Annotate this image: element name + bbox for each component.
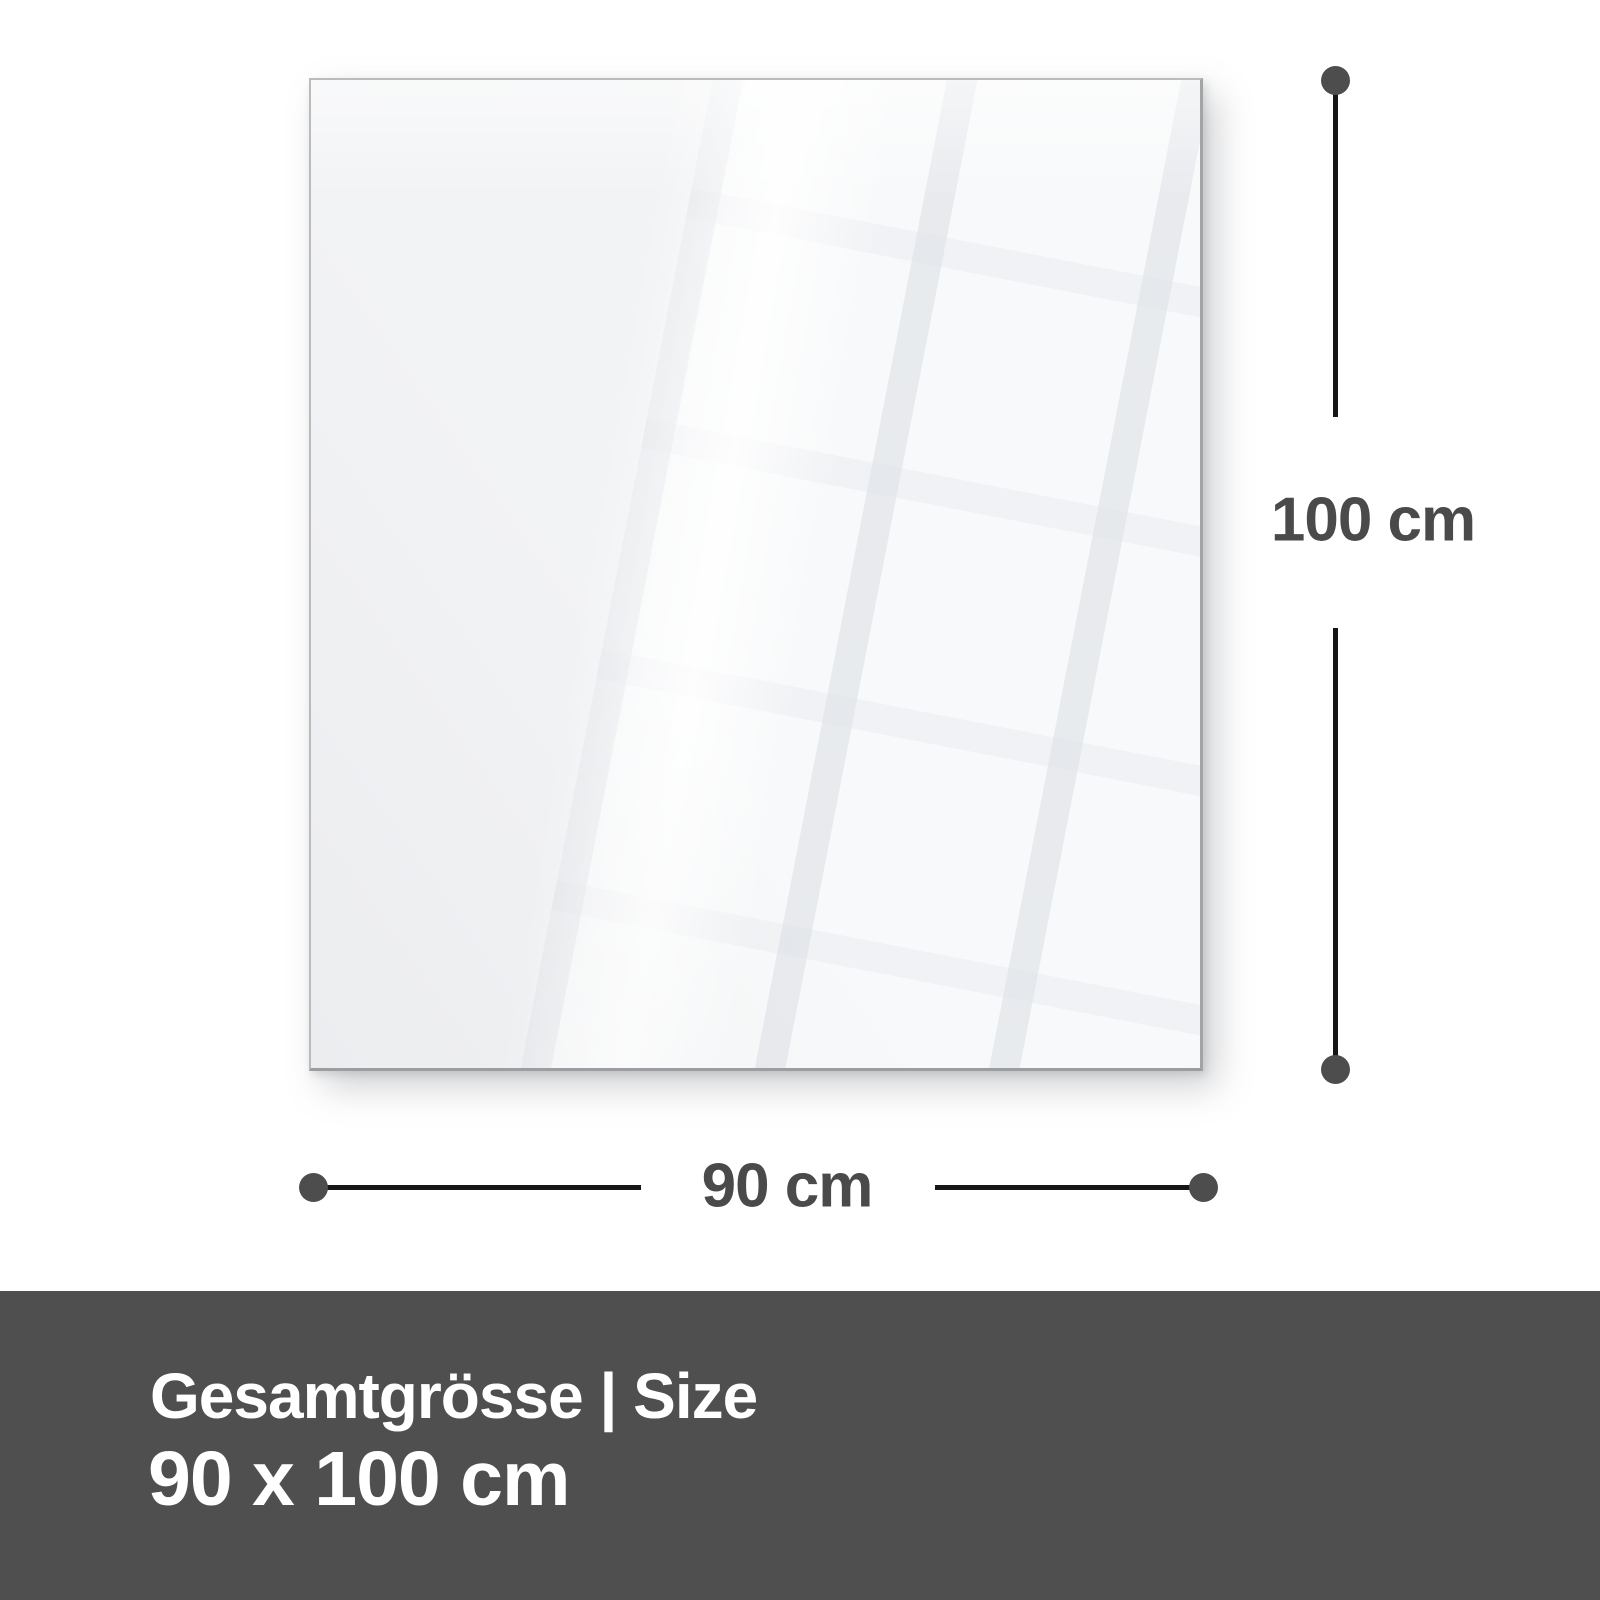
width-dimension-line-right [935,1185,1204,1190]
footer-title: Gesamtgrösse | Size [150,1364,757,1428]
width-dimension-line-left [313,1185,641,1190]
size-footer-banner: Gesamtgrösse | Size 90 x 100 cm [0,1291,1600,1600]
footer-size-value: 90 x 100 cm [148,1441,569,1518]
height-dimension-line-upper [1333,80,1338,417]
product-size-diagram: 100 cm 90 cm Gesamtgrösse | Size 90 x 10… [0,0,1600,1600]
panel-inner-shading [311,80,1200,1068]
width-endpoint-dot-left [299,1173,328,1202]
glass-panel [309,78,1203,1071]
height-endpoint-dot-top [1321,66,1350,95]
height-dimension-label: 100 cm [1271,485,1475,556]
height-endpoint-dot-bottom [1321,1055,1350,1084]
width-dimension-label: 90 cm [702,1151,873,1222]
height-dimension-line-lower [1333,628,1338,1069]
width-endpoint-dot-right [1189,1173,1218,1202]
